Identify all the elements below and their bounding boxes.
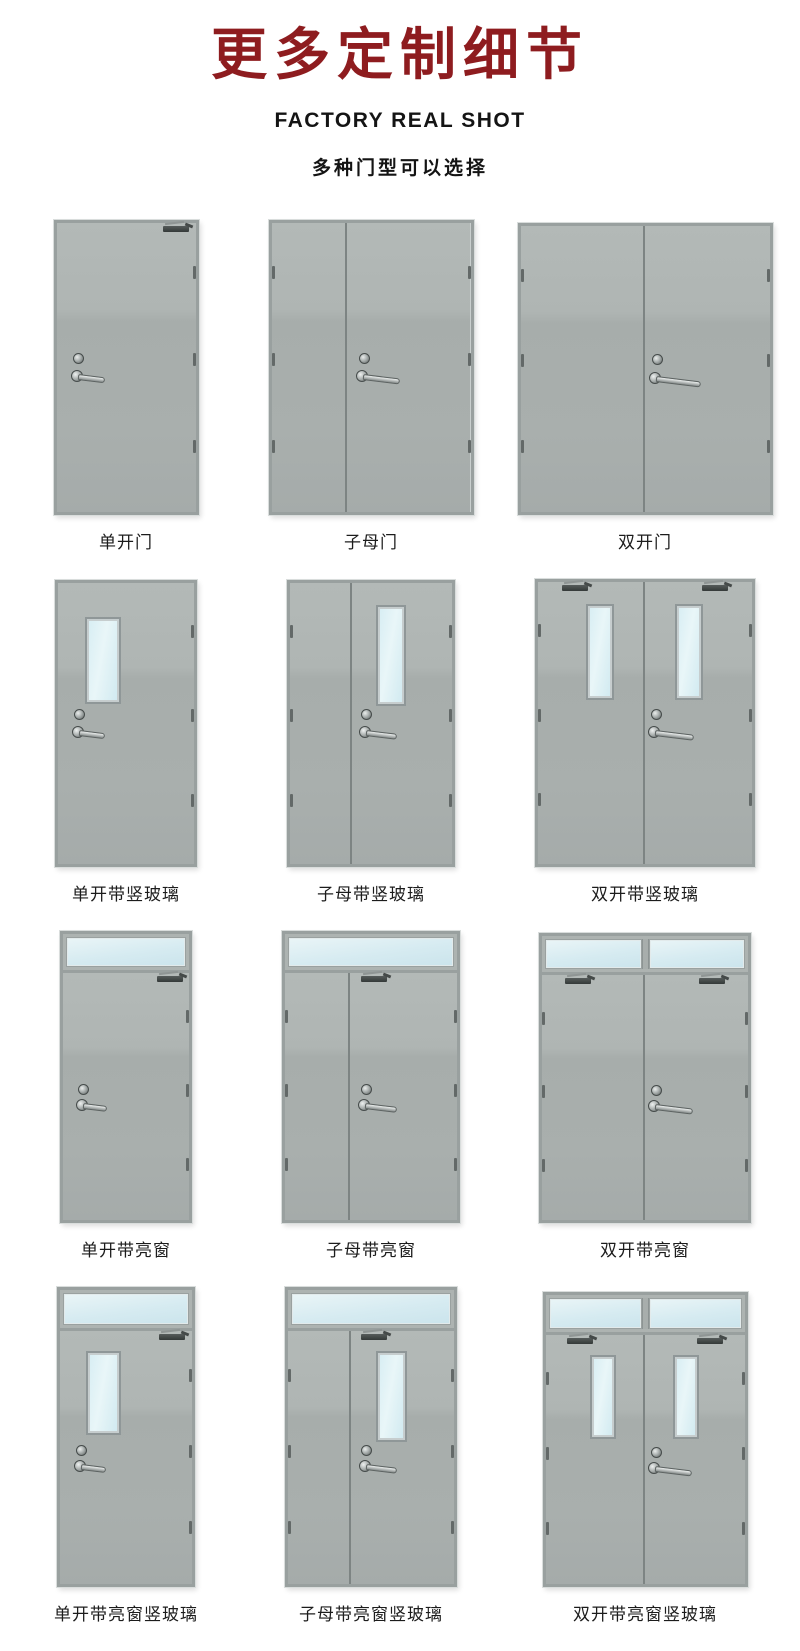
transom-glass bbox=[649, 939, 746, 969]
door-figure-double-transom: 双开带亮窗 bbox=[539, 933, 751, 1261]
page-title: 更多定制细节 bbox=[0, 26, 800, 85]
door-label: 双开带竖玻璃 bbox=[591, 880, 699, 905]
door-figure-mother-child-glass: 子母带竖玻璃 bbox=[287, 580, 455, 905]
door-illustration bbox=[539, 933, 751, 1223]
door-illustration bbox=[60, 931, 192, 1223]
door-leaf bbox=[352, 583, 452, 864]
door-figure-double-glass: 双开带竖玻璃 bbox=[535, 579, 755, 905]
door-hinge bbox=[449, 709, 452, 722]
door-hinge bbox=[542, 1012, 545, 1025]
door-hinge bbox=[454, 1158, 457, 1171]
door-illustration bbox=[54, 220, 199, 515]
door-lock bbox=[651, 1447, 662, 1458]
door-handle bbox=[648, 1462, 660, 1474]
door-leaf bbox=[347, 223, 470, 512]
subtitle-chinese: 多种门型可以选择 bbox=[0, 153, 800, 180]
door-hinge bbox=[189, 1369, 192, 1382]
door-outline bbox=[285, 1287, 457, 1587]
door-leaves bbox=[60, 1331, 192, 1584]
door-hinge bbox=[521, 440, 524, 453]
door-leaves bbox=[542, 975, 748, 1220]
door-outline bbox=[54, 220, 199, 515]
door-hinge bbox=[468, 266, 471, 279]
door-figure-double-transom-glass: 双开带亮窗竖玻璃 bbox=[543, 1292, 748, 1625]
door-handle bbox=[648, 1100, 660, 1112]
door-hinge bbox=[272, 266, 275, 279]
door-leaves bbox=[521, 226, 770, 512]
door-illustration bbox=[287, 580, 455, 867]
door-hinge bbox=[193, 440, 196, 453]
door-illustration bbox=[535, 579, 755, 867]
door-transom bbox=[288, 1290, 454, 1331]
door-hinge bbox=[742, 1447, 745, 1460]
door-hinge bbox=[189, 1521, 192, 1534]
door-lock bbox=[361, 1445, 372, 1456]
door-illustration bbox=[518, 223, 773, 515]
door-closer bbox=[565, 978, 591, 984]
door-hinge bbox=[193, 353, 196, 366]
door-illustration bbox=[57, 1287, 195, 1587]
door-hinge bbox=[272, 353, 275, 366]
door-handle bbox=[359, 1460, 371, 1472]
door-hinge bbox=[521, 269, 524, 282]
door-hinge bbox=[542, 1159, 545, 1172]
door-glass-window bbox=[86, 1351, 120, 1434]
door-hinge bbox=[538, 709, 541, 722]
door-hinge bbox=[767, 354, 770, 367]
door-hinge bbox=[742, 1372, 745, 1385]
door-glass-window bbox=[675, 604, 703, 700]
door-hinge bbox=[521, 354, 524, 367]
door-closer bbox=[562, 585, 588, 591]
door-leaves bbox=[290, 583, 452, 864]
door-outline bbox=[282, 931, 460, 1223]
door-hinge bbox=[542, 1085, 545, 1098]
door-hinge bbox=[468, 440, 471, 453]
door-closer bbox=[699, 978, 725, 984]
door-handle bbox=[72, 726, 84, 738]
door-label: 子母带亮窗 bbox=[326, 1236, 416, 1261]
door-leaf bbox=[645, 1335, 745, 1584]
door-handle bbox=[356, 370, 368, 382]
door-leaves bbox=[57, 223, 196, 512]
door-hinge bbox=[745, 1085, 748, 1098]
door-hinge bbox=[193, 266, 196, 279]
door-hinge bbox=[742, 1522, 745, 1535]
door-hinge bbox=[449, 794, 452, 807]
door-leaf bbox=[290, 583, 352, 864]
door-hinge bbox=[454, 1010, 457, 1023]
door-figure-mother-child-transom: 子母带亮窗 bbox=[282, 931, 460, 1261]
door-label: 单开门 bbox=[99, 528, 153, 553]
door-row-2: 单开带竖玻璃 子母带竖玻璃 双开带竖玻璃 bbox=[0, 579, 800, 905]
door-figure-single-glass: 单开带竖玻璃 bbox=[55, 580, 197, 905]
door-hinge bbox=[546, 1372, 549, 1385]
page-root: 更多定制细节 FACTORY REAL SHOT 多种门型可以选择 单开门 子母… bbox=[0, 0, 800, 1625]
door-transom bbox=[546, 1295, 745, 1335]
door-hinge bbox=[538, 624, 541, 637]
door-glass-window bbox=[590, 1355, 615, 1440]
door-leaves bbox=[272, 223, 471, 512]
door-hinge bbox=[191, 794, 194, 807]
door-figure-single-transom-glass: 单开带亮窗竖玻璃 bbox=[54, 1287, 198, 1625]
door-hinge bbox=[290, 709, 293, 722]
door-leaf bbox=[645, 226, 770, 512]
door-hinge bbox=[767, 440, 770, 453]
door-leaf bbox=[288, 1331, 351, 1584]
door-row-1: 单开门 子母门 双开门 bbox=[0, 220, 800, 553]
door-leaf bbox=[272, 223, 348, 512]
transom-glass bbox=[63, 1293, 189, 1325]
door-glass-window bbox=[586, 604, 613, 700]
door-leaves bbox=[63, 973, 189, 1220]
door-hinge bbox=[745, 1159, 748, 1172]
door-lock bbox=[78, 1084, 89, 1095]
door-hinge bbox=[749, 624, 752, 637]
door-handle bbox=[71, 370, 83, 382]
door-leaf bbox=[350, 973, 457, 1220]
transom-glass bbox=[549, 1298, 642, 1329]
door-handle bbox=[74, 1460, 86, 1472]
door-label: 单开带竖玻璃 bbox=[72, 880, 180, 905]
door-lock bbox=[76, 1445, 87, 1456]
door-label: 单开带亮窗竖玻璃 bbox=[54, 1600, 198, 1625]
door-transom bbox=[60, 1290, 192, 1331]
door-leaf bbox=[58, 583, 194, 864]
door-hinge bbox=[468, 353, 471, 366]
door-hinge bbox=[288, 1445, 291, 1458]
door-hinge bbox=[451, 1369, 454, 1382]
door-transom bbox=[542, 936, 748, 975]
transom-glass bbox=[66, 937, 186, 967]
door-leaves bbox=[538, 582, 752, 864]
door-outline bbox=[518, 223, 773, 515]
door-leaf bbox=[546, 1335, 646, 1584]
door-outline bbox=[539, 933, 751, 1223]
door-figure-mother-child: 子母门 bbox=[269, 220, 474, 553]
door-figure-single-transom: 单开带亮窗 bbox=[60, 931, 192, 1261]
door-label: 子母带亮窗竖玻璃 bbox=[299, 1600, 443, 1625]
door-leaf bbox=[542, 975, 645, 1220]
transom-glass bbox=[291, 1293, 451, 1325]
door-hinge bbox=[285, 1084, 288, 1097]
transom-glass bbox=[288, 937, 454, 967]
door-hinge bbox=[451, 1445, 454, 1458]
door-hinge bbox=[186, 1158, 189, 1171]
door-leaf bbox=[57, 223, 196, 512]
door-hinge bbox=[449, 625, 452, 638]
door-leaves bbox=[288, 1331, 454, 1584]
door-closer bbox=[702, 585, 728, 591]
door-closer bbox=[163, 226, 189, 232]
door-outline bbox=[535, 579, 755, 867]
door-figure-single: 单开门 bbox=[54, 220, 199, 553]
door-handle bbox=[76, 1099, 88, 1111]
door-leaf bbox=[351, 1331, 454, 1584]
door-leaves bbox=[58, 583, 194, 864]
door-outline bbox=[543, 1292, 748, 1587]
door-illustration bbox=[269, 220, 474, 515]
door-leaf bbox=[285, 973, 350, 1220]
door-outline bbox=[57, 1287, 195, 1587]
door-handle bbox=[358, 1099, 370, 1111]
door-hinge bbox=[189, 1445, 192, 1458]
door-outline bbox=[55, 580, 197, 867]
door-figure-mother-child-transom-glass: 子母带亮窗竖玻璃 bbox=[285, 1287, 457, 1625]
door-label: 子母门 bbox=[344, 528, 398, 553]
door-hinge bbox=[745, 1012, 748, 1025]
door-closer bbox=[361, 976, 387, 982]
door-leaf bbox=[521, 226, 646, 512]
door-hinge bbox=[191, 709, 194, 722]
door-hinge bbox=[285, 1010, 288, 1023]
door-outline bbox=[60, 931, 192, 1223]
door-label: 子母带竖玻璃 bbox=[317, 880, 425, 905]
door-illustration bbox=[282, 931, 460, 1223]
door-label: 单开带亮窗 bbox=[81, 1236, 171, 1261]
door-hinge bbox=[191, 625, 194, 638]
door-hinge bbox=[451, 1521, 454, 1534]
door-hinge bbox=[186, 1084, 189, 1097]
subtitle-english: FACTORY REAL SHOT bbox=[0, 109, 800, 133]
door-label: 双开带亮窗竖玻璃 bbox=[573, 1600, 717, 1625]
door-hinge bbox=[272, 440, 275, 453]
door-leaf bbox=[60, 1331, 192, 1584]
door-glass-window bbox=[376, 1351, 407, 1442]
door-hinge bbox=[290, 625, 293, 638]
door-hinge bbox=[288, 1369, 291, 1382]
door-transom bbox=[63, 934, 189, 973]
door-outline bbox=[287, 580, 455, 867]
door-leaf bbox=[645, 975, 748, 1220]
door-closer bbox=[697, 1338, 723, 1344]
door-transom bbox=[285, 934, 457, 973]
door-hinge bbox=[454, 1084, 457, 1097]
door-glass-window bbox=[673, 1355, 699, 1440]
door-closer bbox=[567, 1338, 593, 1344]
door-hinge bbox=[186, 1010, 189, 1023]
door-types-grid: 单开门 子母门 双开门 单开带竖玻璃 子母带竖玻璃 双开带竖玻璃 bbox=[0, 220, 800, 1625]
door-leaves bbox=[285, 973, 457, 1220]
door-lock bbox=[359, 353, 370, 364]
transom-mullion bbox=[642, 939, 649, 969]
door-handle bbox=[649, 372, 661, 384]
door-hinge bbox=[749, 709, 752, 722]
door-row-3: 单开带亮窗 子母带亮窗 双开带亮窗 bbox=[0, 931, 800, 1261]
door-hinge bbox=[546, 1522, 549, 1535]
door-hinge bbox=[546, 1447, 549, 1460]
door-leaves bbox=[546, 1335, 745, 1584]
door-leaf bbox=[538, 582, 645, 864]
door-lock bbox=[73, 353, 84, 364]
door-handle bbox=[648, 726, 660, 738]
door-glass-window bbox=[376, 605, 406, 706]
door-hinge bbox=[290, 794, 293, 807]
door-hinge bbox=[767, 269, 770, 282]
door-closer bbox=[157, 976, 183, 982]
header: 更多定制细节 FACTORY REAL SHOT 多种门型可以选择 bbox=[0, 26, 800, 180]
door-hinge bbox=[749, 793, 752, 806]
door-label: 双开带亮窗 bbox=[600, 1236, 690, 1261]
door-leaf bbox=[63, 973, 189, 1220]
door-illustration bbox=[55, 580, 197, 867]
door-row-4: 单开带亮窗竖玻璃 子母带亮窗竖玻璃 双开带亮窗竖玻璃 bbox=[0, 1287, 800, 1625]
transom-mullion bbox=[642, 1298, 649, 1329]
door-glass-window bbox=[85, 617, 120, 704]
door-leaf bbox=[645, 582, 752, 864]
door-label: 双开门 bbox=[618, 528, 672, 553]
door-hinge bbox=[285, 1158, 288, 1171]
door-lock bbox=[361, 1084, 372, 1095]
door-illustration bbox=[543, 1292, 748, 1587]
transom-glass bbox=[545, 939, 642, 969]
door-handle bbox=[359, 726, 371, 738]
door-closer bbox=[159, 1334, 185, 1340]
door-closer bbox=[361, 1334, 387, 1340]
door-outline bbox=[269, 220, 474, 515]
door-hinge bbox=[538, 793, 541, 806]
door-hinge bbox=[288, 1521, 291, 1534]
door-illustration bbox=[285, 1287, 457, 1587]
transom-glass bbox=[649, 1298, 742, 1329]
door-figure-double: 双开门 bbox=[518, 223, 773, 553]
